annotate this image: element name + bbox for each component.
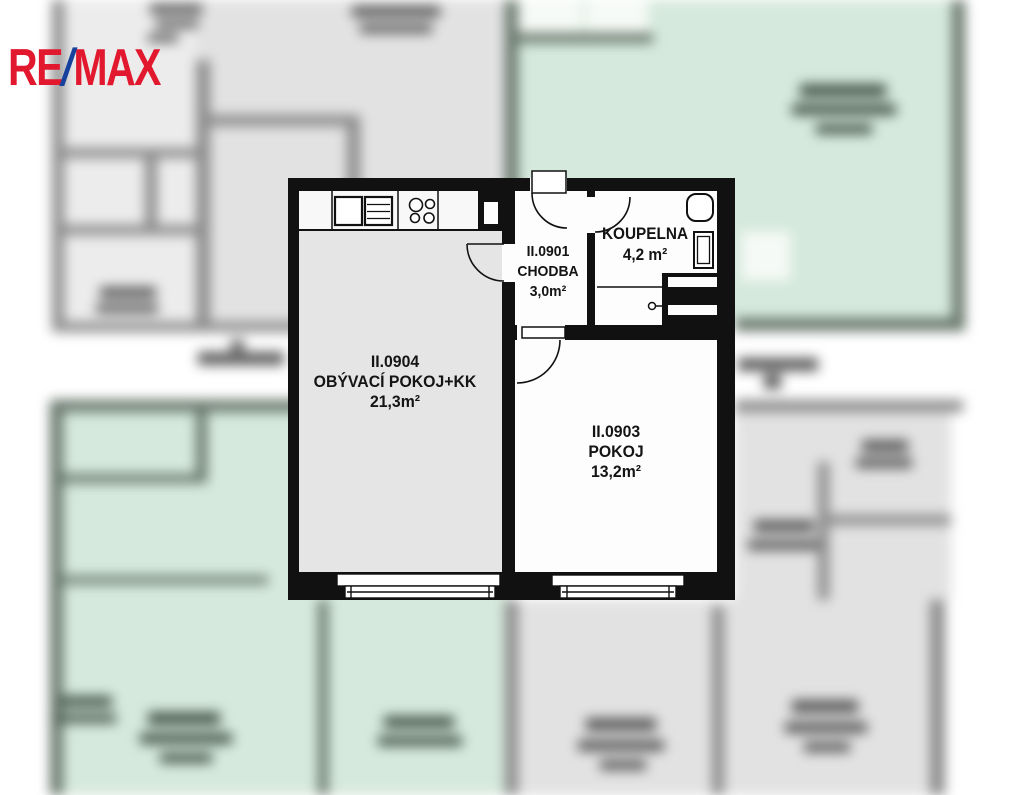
room-area: 13,2m² — [523, 462, 709, 482]
bg-shape — [378, 736, 462, 746]
bg-shape — [586, 718, 656, 731]
bg-shape — [207, 115, 359, 126]
window-sill — [337, 574, 500, 586]
bg-shape — [231, 340, 244, 351]
bg-shape — [518, 600, 945, 795]
apartment-floorplan: II.0904 OBÝVACÍ POKOJ+KK 21,3m² II.0901 … — [288, 178, 735, 600]
floorplan-image: RE/MAX — [0, 0, 1023, 795]
bg-shape — [818, 462, 829, 600]
remax-logo: RE/MAX — [8, 38, 160, 98]
shaft-slot — [668, 277, 717, 287]
sink-icon — [335, 197, 362, 225]
room-label-hallway: II.0901 CHODBA 3,0m² — [502, 242, 595, 302]
bg-shape — [156, 20, 198, 28]
bg-shape — [952, 0, 965, 325]
bg-shape — [100, 287, 156, 298]
room-id: II.0904 — [302, 352, 488, 372]
bg-shape — [816, 124, 872, 134]
bg-shape — [140, 733, 232, 744]
bg-shape — [145, 150, 157, 230]
room-label-living: II.0904 OBÝVACÍ POKOJ+KK 21,3m² — [302, 352, 488, 412]
bg-shape — [518, 33, 653, 43]
room-name: POKOJ — [523, 442, 709, 462]
wall-center — [502, 178, 515, 572]
bg-shape — [792, 700, 858, 713]
wall-left — [288, 178, 299, 600]
bg-shape — [150, 4, 202, 14]
bg-shape — [785, 722, 867, 733]
kitchen-counter — [299, 191, 502, 231]
bg-shape — [586, 0, 648, 33]
window-sill — [552, 575, 684, 586]
room-area: 3,0m² — [502, 282, 595, 302]
bedroom-door-leaf — [522, 327, 565, 338]
room-id: II.0903 — [523, 422, 709, 442]
bg-shape — [735, 412, 951, 600]
bg-shape — [318, 600, 328, 795]
entrance-door-leaf — [532, 171, 566, 193]
bg-shape — [50, 400, 63, 795]
wall-niche — [484, 202, 498, 224]
room-name: CHODBA — [502, 262, 595, 282]
bg-shape — [64, 225, 196, 235]
room-label-bathroom: KOUPELNA 4,2 m² — [589, 224, 701, 266]
logo-max: MAX — [73, 39, 160, 97]
shaft-slot — [668, 305, 717, 315]
bg-shape — [196, 60, 210, 332]
bg-shape — [764, 374, 781, 389]
bg-shape — [63, 576, 268, 584]
bg-shape — [712, 606, 724, 795]
room-id: II.0901 — [502, 242, 595, 262]
bg-shape — [518, 0, 582, 33]
bg-shape — [198, 352, 284, 365]
bg-shape — [352, 6, 440, 17]
logo-re: RE — [8, 39, 62, 97]
door-knob-icon — [649, 303, 656, 310]
bg-shape — [63, 474, 207, 483]
bg-shape — [735, 400, 963, 412]
bg-shape — [735, 318, 965, 331]
room-area: 21,3m² — [302, 392, 488, 412]
bg-shape — [800, 84, 886, 97]
bg-shape — [600, 760, 646, 770]
bg-shape — [196, 412, 207, 478]
wall-right — [717, 178, 735, 600]
room-label-bedroom: II.0903 POKOJ 13,2m² — [523, 422, 709, 482]
bg-shape — [856, 458, 912, 468]
bg-shape — [96, 304, 158, 313]
bg-shape — [148, 712, 220, 725]
washbasin-icon — [687, 194, 713, 221]
room-name: OBÝVACÍ POKOJ+KK — [302, 372, 488, 392]
bg-shape — [738, 358, 818, 371]
bg-shape — [930, 600, 945, 795]
bg-shape — [818, 515, 951, 525]
room-area: 4,2 m² — [589, 245, 701, 266]
bg-shape — [384, 716, 454, 728]
bg-shape — [742, 232, 790, 280]
bg-shape — [754, 520, 814, 532]
bg-shape — [160, 753, 212, 763]
bg-shape — [60, 696, 112, 707]
bg-shape — [64, 148, 196, 158]
bg-shape — [862, 440, 908, 452]
bg-shape — [578, 740, 664, 751]
bg-shape — [505, 600, 518, 795]
bg-shape — [56, 714, 116, 723]
bg-shape — [804, 742, 850, 752]
bg-shape — [360, 24, 432, 33]
bg-shape — [748, 540, 818, 550]
bg-shape — [792, 104, 896, 115]
room-name: KOUPELNA — [589, 224, 701, 245]
